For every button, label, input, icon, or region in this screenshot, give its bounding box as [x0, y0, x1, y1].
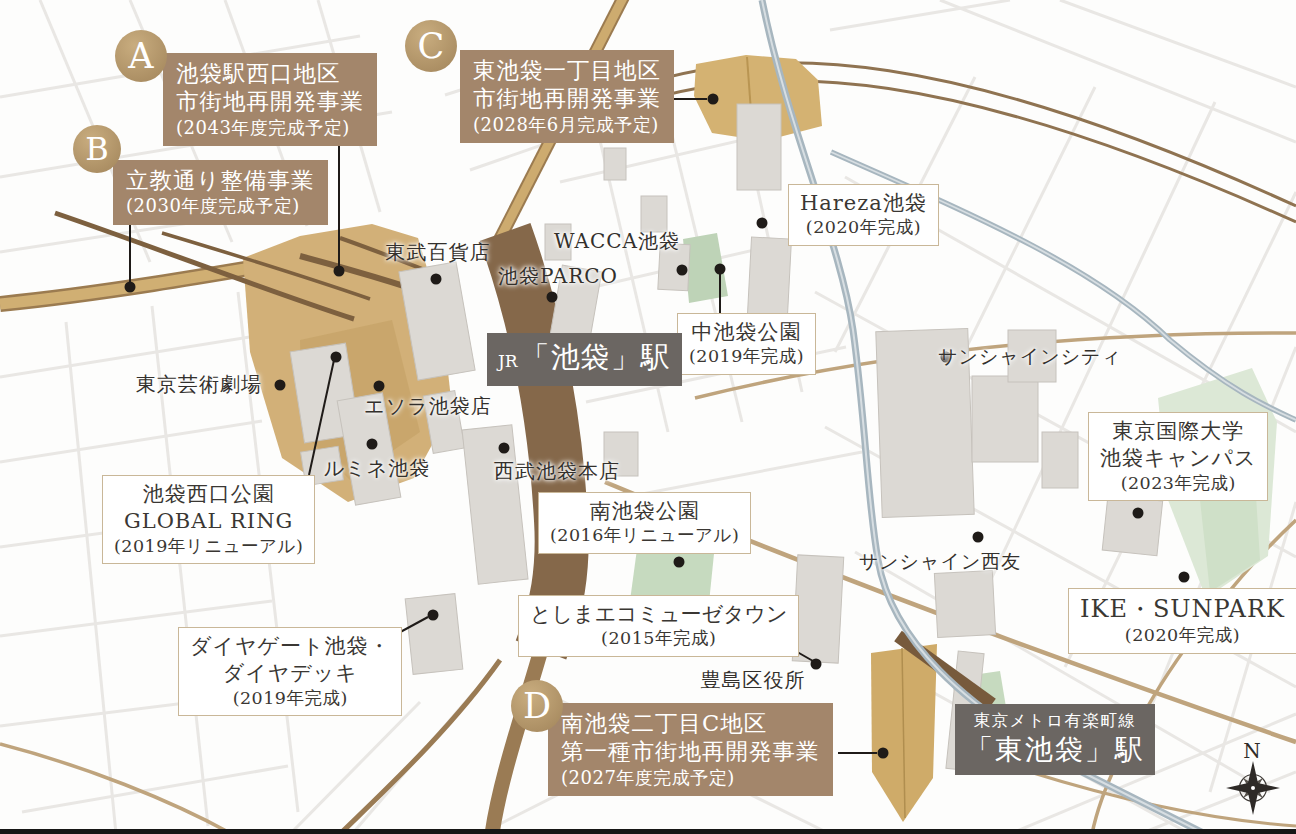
- project-c-label: 東池袋一丁目地区 市街地再開発事業 (2028年6月完成予定): [460, 50, 674, 143]
- project-d-name-line1: 南池袋二丁目C地区: [561, 709, 820, 737]
- facility-tiu-name2: 池袋キャンパス: [1100, 445, 1256, 472]
- project-b-name: 立教通り整備事業: [126, 166, 315, 194]
- ikebukuro-redevelopment-map: A B C D 池袋駅西口地区 市街地再開発事業 (2043年度完成予定) 立教…: [0, 0, 1296, 834]
- project-b-date: (2030年度完成予定): [126, 195, 315, 218]
- place-label-toshima-city-hall: 豊島区役所: [701, 667, 806, 694]
- place-label-parco: 池袋PARCO: [498, 263, 618, 290]
- project-b-marker: B: [73, 125, 121, 173]
- project-a-label: 池袋駅西口地区 市街地再開発事業 (2043年度完成予定): [163, 53, 377, 146]
- facility-nishiguchi-park-name: 池袋西口公園: [114, 481, 303, 508]
- facility-naka-park-date: (2019年完成): [689, 346, 804, 368]
- facility-minami-park-date: (2016年リニューアル): [550, 525, 739, 547]
- facility-minami-park-label: 南池袋公園 (2016年リニューアル): [538, 492, 751, 554]
- project-a-marker: A: [115, 30, 167, 82]
- place-label-tobu: 東武百貨店: [386, 239, 491, 266]
- facility-hareza-label: Hareza池袋 (2020年完成): [788, 184, 939, 246]
- place-label-lumine: ルミネ池袋: [324, 455, 430, 482]
- compass-rose-icon: [1226, 761, 1280, 815]
- project-c-name-line1: 東池袋一丁目地区: [473, 56, 661, 84]
- facility-ike-sunpark-label: IKE・SUNPARK (2020年完成): [1068, 588, 1296, 654]
- facility-tiu-name: 東京国際大学: [1100, 418, 1256, 445]
- facility-diagate-name: ダイヤゲート池袋・: [190, 633, 390, 660]
- facility-hareza-date: (2020年完成): [800, 217, 927, 239]
- facility-nishiguchi-park-label: 池袋西口公園 GLOBAL RING (2019年リニューアル): [102, 475, 315, 564]
- place-label-seibu: 西武池袋本店: [494, 458, 620, 485]
- facility-diagate-name2: ダイヤデッキ: [190, 660, 390, 687]
- facility-ecomusee-date: (2015年完成): [530, 628, 787, 650]
- project-a-name-line2: 市街地再開発事業: [176, 87, 364, 115]
- project-c-marker: C: [405, 20, 457, 72]
- project-b-label: 立教通り整備事業 (2030年度完成予定): [113, 160, 328, 225]
- place-label-geijutsu-gekijo: 東京芸術劇場: [136, 371, 262, 398]
- place-label-esola: エソラ池袋店: [364, 393, 491, 420]
- station-higashi-ikebukuro-badge: 東京メトロ有楽町線 「東池袋」駅: [955, 704, 1155, 775]
- project-d-marker: D: [511, 680, 563, 732]
- station-ikebukuro-badge: JR 「池袋」駅: [487, 333, 682, 386]
- facility-tiu-label: 東京国際大学 池袋キャンパス (2023年完成): [1088, 412, 1268, 501]
- facility-naka-park-label: 中池袋公園 (2019年完成): [677, 313, 816, 375]
- place-label-sunshine-city: サンシャインシティ: [938, 344, 1122, 370]
- project-d-label: 南池袋二丁目C地区 第一種市街地再開発事業 (2027年度完成予定): [548, 703, 833, 796]
- facility-ecomusee-name: としまエコミューゼタウン: [530, 601, 787, 628]
- facility-hareza-name: Hareza池袋: [800, 190, 927, 217]
- facility-diagate-label: ダイヤゲート池袋・ ダイヤデッキ (2019年完成): [178, 627, 402, 716]
- station-higashi-name: 「東池袋」駅: [965, 732, 1145, 767]
- facility-ike-sunpark-date: (2020年完成): [1080, 625, 1285, 647]
- facility-minami-park-name: 南池袋公園: [550, 498, 739, 525]
- facility-diagate-date: (2019年完成): [190, 688, 390, 710]
- facility-ecomusee-label: としまエコミューゼタウン (2015年完成): [518, 595, 799, 657]
- project-a-name-line1: 池袋駅西口地区: [176, 59, 364, 87]
- project-d-date: (2027年度完成予定): [561, 767, 820, 790]
- project-c-date: (2028年6月完成予定): [473, 114, 661, 137]
- facility-nishiguchi-park-date: (2019年リニューアル): [114, 536, 303, 558]
- facility-tiu-date: (2023年完成): [1100, 473, 1256, 495]
- project-a-date: (2043年度完成予定): [176, 117, 364, 140]
- bottom-edge-bar: [0, 829, 1296, 834]
- station-ikebukuro-prefix: JR: [498, 351, 518, 371]
- station-ikebukuro-name: 「池袋」駅: [521, 338, 671, 378]
- facility-naka-park-name: 中池袋公園: [689, 319, 804, 346]
- compass-north-label: N: [1243, 739, 1261, 763]
- station-higashi-line: 東京メトロ有楽町線: [965, 710, 1145, 732]
- facility-nishiguchi-park-name2: GLOBAL RING: [114, 508, 303, 535]
- place-label-sunshine-seiyu: サンシャイン西友: [859, 549, 1022, 575]
- project-d-name-line2: 第一種市街地再開発事業: [561, 737, 820, 765]
- project-c-name-line2: 市街地再開発事業: [473, 84, 661, 112]
- place-label-wacca: WACCA池袋: [554, 228, 680, 255]
- facility-ike-sunpark-name: IKE・SUNPARK: [1080, 594, 1285, 625]
